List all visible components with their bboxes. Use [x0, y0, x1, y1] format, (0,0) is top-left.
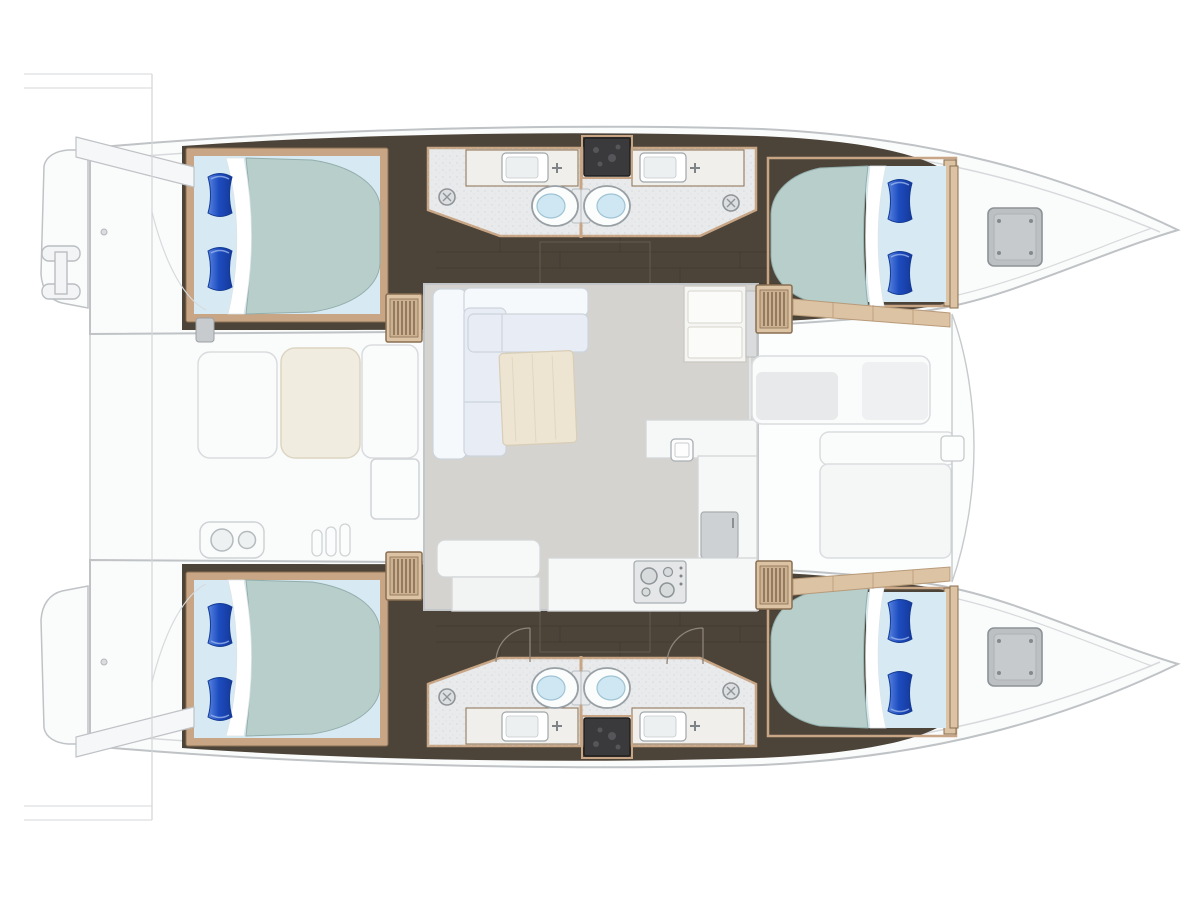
deck-box — [196, 318, 214, 342]
coffee-table — [499, 350, 577, 445]
bow-step-pad — [941, 436, 964, 461]
salon-cabinet — [437, 540, 540, 577]
salon-cabinet-low — [452, 577, 540, 611]
seat-cushion — [756, 372, 838, 420]
galley-island — [646, 420, 757, 458]
cockpit-bench — [198, 352, 277, 458]
cockpit-side-bench — [362, 345, 418, 458]
lounge-bench — [752, 356, 930, 424]
storage-box — [371, 459, 419, 519]
cockpit-table — [281, 348, 360, 458]
galley-sink — [671, 439, 693, 461]
salon — [386, 284, 792, 611]
stove — [634, 561, 686, 603]
seat-cushion — [862, 362, 928, 420]
floorplan-canvas — [0, 0, 1200, 900]
sun-bench — [820, 432, 956, 558]
wet-bar-sink — [200, 522, 264, 558]
catamaran-floorplan — [0, 0, 1200, 900]
